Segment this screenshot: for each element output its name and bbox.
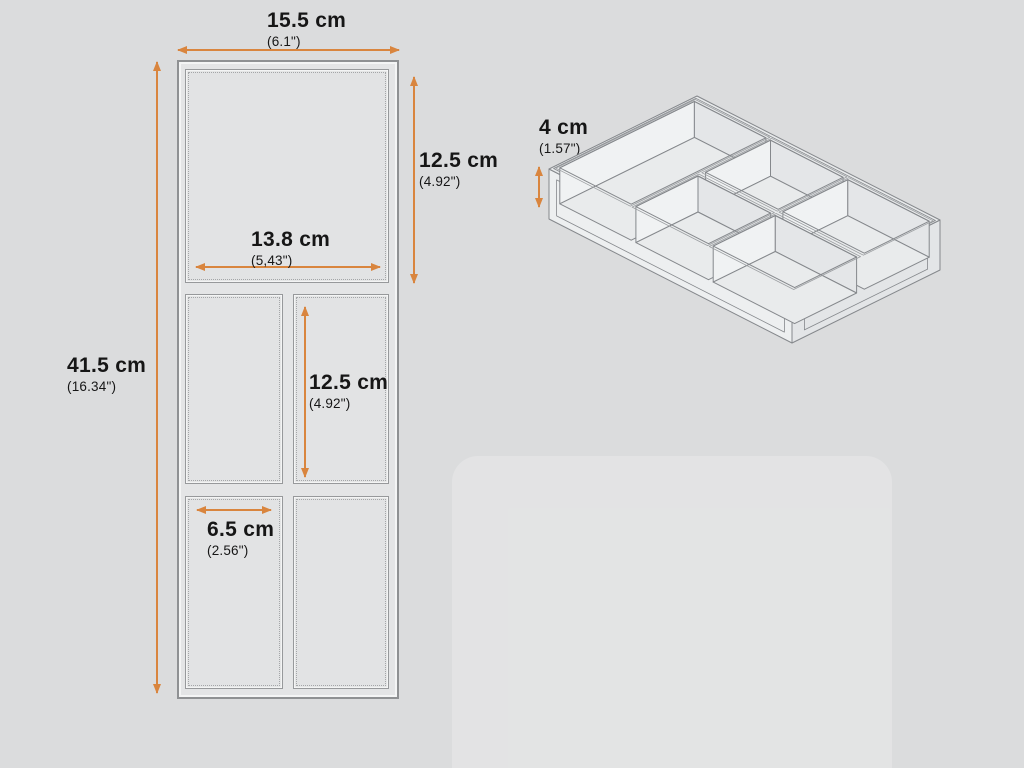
top-compartment-width-value: 13.8 cm [251,229,330,250]
total-height-alt: (16.34") [67,380,146,394]
top-compartment-height-value: 12.5 cm [419,150,498,171]
total-width-dimension-arrow [178,49,399,51]
total-width-value: 15.5 cm [267,10,346,31]
bottom-compartment-width-value: 6.5 cm [207,519,274,540]
diagram-canvas: 15.5 cm (6.1") 41.5 cm (16.34") 12.5 cm … [0,0,1024,768]
background-shadow-patch [452,456,892,768]
bottom-compartment-width-alt: (2.56") [207,544,274,558]
iso-view-tray-drawing [500,60,970,360]
bottom-compartment-width-label: 6.5 cm (2.56") [207,519,274,558]
total-height-label: 41.5 cm (16.34") [67,355,146,394]
total-width-alt: (6.1") [267,35,346,49]
top-compartment-height-alt: (4.92") [419,175,498,189]
middle-compartment-height-value: 12.5 cm [309,372,388,393]
middle-compartment-height-alt: (4.92") [309,397,388,411]
total-height-value: 41.5 cm [67,355,146,376]
top-compartment-width-label: 13.8 cm (5,43") [251,229,330,268]
compartment-bottom-right [293,496,389,689]
top-compartment-width-alt: (5,43") [251,254,330,268]
total-width-label: 15.5 cm (6.1") [267,10,346,49]
total-height-dimension-arrow [156,62,158,693]
compartment-middle-left [185,294,283,484]
top-compartment-height-dimension-arrow [413,77,415,283]
bottom-compartment-width-dimension-arrow [197,509,271,511]
top-compartment-height-label: 12.5 cm (4.92") [419,150,498,189]
middle-compartment-height-label: 12.5 cm (4.92") [309,372,388,411]
middle-compartment-height-dimension-arrow [304,307,306,477]
